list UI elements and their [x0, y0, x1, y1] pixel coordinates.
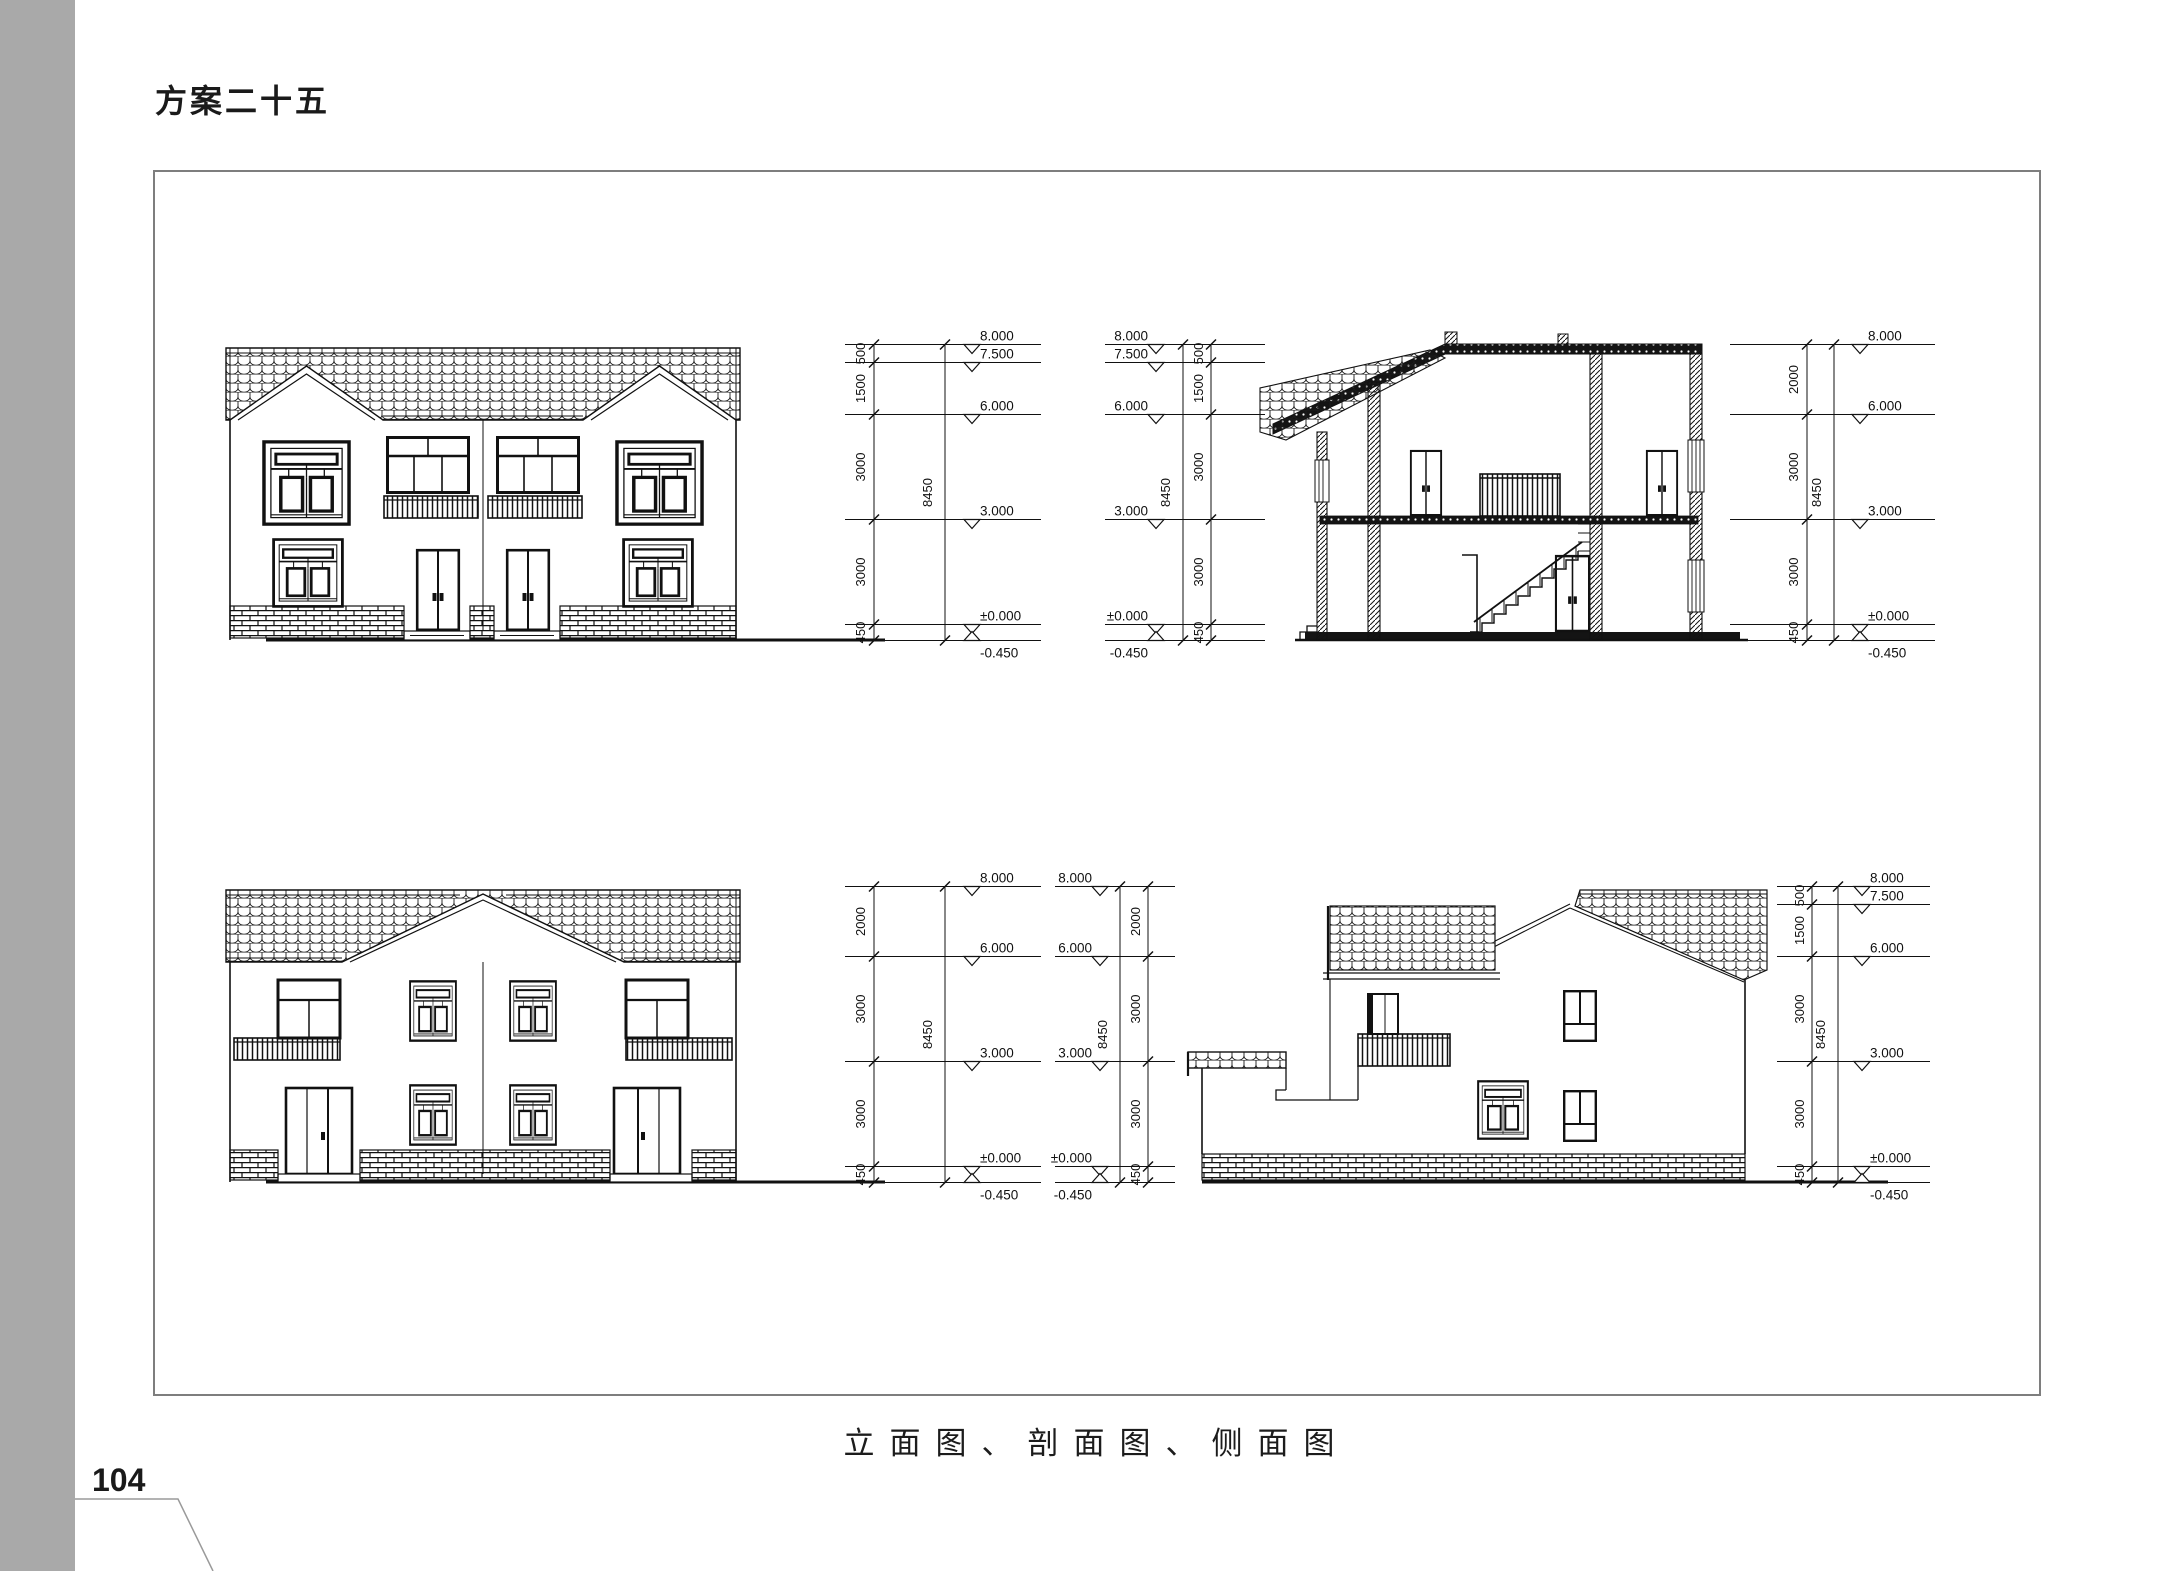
figure-caption: 立面图、剖面图、侧面图	[153, 1418, 2040, 1463]
svg-text:3000: 3000	[1786, 558, 1801, 587]
svg-text:-0.450: -0.450	[1868, 646, 1906, 661]
roof-tiles	[1575, 890, 1767, 980]
dim-stack-side-right: 50015003000300045084508.0007.5006.0003.0…	[1777, 871, 1930, 1203]
svg-text:500: 500	[1191, 343, 1206, 365]
svg-text:3000: 3000	[853, 558, 868, 587]
balcony-door	[1368, 994, 1398, 1034]
lattice-window	[1478, 1081, 1528, 1138]
roof-tiles	[226, 890, 740, 962]
svg-text:8.000: 8.000	[1114, 329, 1148, 344]
svg-text:8450: 8450	[920, 478, 935, 507]
brick-base	[1202, 1154, 1745, 1180]
svg-text:3000: 3000	[853, 453, 868, 482]
svg-text:±0.000: ±0.000	[1107, 609, 1148, 624]
svg-text:3.000: 3.000	[980, 1046, 1014, 1061]
svg-text:1500: 1500	[1792, 916, 1807, 945]
dim-stack-front-right: 50015003000300045084508.0007.5006.0003.0…	[845, 329, 1041, 661]
entry-door	[417, 550, 459, 630]
svg-text:7.500: 7.500	[1870, 889, 1904, 904]
roof-tiles	[1260, 350, 1445, 440]
roof-tiles	[226, 348, 740, 420]
interior-door	[1556, 556, 1589, 631]
dim-stack-side-left: 20003000300045084508.0006.0003.000±0.000…	[1051, 871, 1175, 1203]
svg-text:2000: 2000	[853, 907, 868, 936]
svg-text:8450: 8450	[1813, 1020, 1828, 1049]
svg-text:450: 450	[1191, 622, 1206, 644]
svg-text:3.000: 3.000	[1868, 504, 1902, 519]
svg-text:3000: 3000	[1128, 1100, 1143, 1129]
lattice-window	[410, 1085, 456, 1144]
svg-text:7.500: 7.500	[1114, 347, 1148, 362]
svg-text:8.000: 8.000	[1868, 329, 1902, 344]
svg-text:450: 450	[1792, 1164, 1807, 1186]
page-title: 方案二十五	[155, 76, 330, 122]
dim-stack-section-right: 20003000300045084508.0006.0003.000±0.000…	[1730, 329, 1935, 661]
floor-slab	[1320, 516, 1698, 524]
rear-door-right	[614, 1088, 680, 1174]
dim-stack-rear-right: 20003000300045084508.0006.0003.000±0.000…	[845, 871, 1041, 1203]
section-drawing: 50015003000300045084508.0007.5006.0003.0…	[1090, 320, 1980, 700]
svg-text:3.000: 3.000	[980, 504, 1014, 519]
svg-text:8.000: 8.000	[1870, 871, 1904, 886]
front-elevation-drawing: 50015003000300045084508.0007.5006.0003.0…	[190, 320, 1060, 700]
roof	[1323, 890, 1767, 982]
lattice-window	[624, 540, 693, 607]
svg-text:±0.000: ±0.000	[980, 1151, 1021, 1166]
stair-guard-railing	[1480, 474, 1560, 516]
svg-text:450: 450	[1786, 622, 1801, 644]
svg-text:450: 450	[853, 1164, 868, 1186]
side-window	[1564, 1091, 1596, 1141]
svg-text:8450: 8450	[920, 1020, 935, 1049]
svg-text:7.500: 7.500	[980, 347, 1014, 362]
lattice-window	[410, 981, 456, 1040]
svg-text:±0.000: ±0.000	[980, 609, 1021, 624]
svg-text:1500: 1500	[1191, 374, 1206, 403]
svg-text:3000: 3000	[1792, 1100, 1807, 1129]
svg-text:500: 500	[1792, 885, 1807, 907]
svg-text:-0.450: -0.450	[1110, 646, 1148, 661]
dim-stack-section-left: 50015003000300045084508.0007.5006.0003.0…	[1105, 329, 1265, 661]
svg-text:2000: 2000	[1128, 907, 1143, 936]
svg-text:8450: 8450	[1095, 1020, 1110, 1049]
lattice-window	[510, 1085, 556, 1144]
svg-text:3.000: 3.000	[1870, 1046, 1904, 1061]
side-window	[1564, 991, 1596, 1041]
brick-base	[230, 606, 736, 638]
interior-door	[1647, 451, 1677, 515]
porch-parapet	[1188, 1052, 1358, 1154]
balcony-left	[234, 980, 340, 1060]
roof-tiles	[1330, 906, 1495, 970]
svg-text:6.000: 6.000	[1870, 941, 1904, 956]
svg-text:6.000: 6.000	[1868, 399, 1902, 414]
svg-text:3000: 3000	[1191, 453, 1206, 482]
lattice-window	[617, 442, 702, 524]
svg-text:3000: 3000	[1191, 558, 1206, 587]
balcony-railing	[1358, 1034, 1450, 1066]
side-elevation-drawing: 20003000300045084508.0006.0003.000±0.000…	[1040, 862, 1950, 1242]
balcony-right	[626, 980, 732, 1060]
book-page: 方案二十五	[0, 0, 2173, 1571]
svg-text:-0.450: -0.450	[1054, 1188, 1092, 1203]
svg-text:6.000: 6.000	[1114, 399, 1148, 414]
interior-door	[1411, 451, 1441, 515]
balcony-window	[498, 438, 579, 493]
svg-text:±0.000: ±0.000	[1868, 609, 1909, 624]
svg-text:-0.450: -0.450	[980, 1188, 1018, 1203]
svg-text:2000: 2000	[1786, 365, 1801, 394]
svg-text:3.000: 3.000	[1114, 504, 1148, 519]
svg-text:3000: 3000	[853, 1100, 868, 1129]
svg-text:3000: 3000	[1792, 995, 1807, 1024]
entry-door	[507, 550, 549, 630]
svg-text:8450: 8450	[1158, 478, 1173, 507]
svg-text:±0.000: ±0.000	[1051, 1151, 1092, 1166]
svg-text:8.000: 8.000	[980, 329, 1014, 344]
svg-text:-0.450: -0.450	[980, 646, 1018, 661]
svg-text:3.000: 3.000	[1058, 1046, 1092, 1061]
rear-elevation-drawing: 20003000300045084508.0006.0003.000±0.000…	[190, 862, 1060, 1242]
svg-text:450: 450	[853, 622, 868, 644]
svg-text:8.000: 8.000	[1058, 871, 1092, 886]
svg-text:450: 450	[1128, 1164, 1143, 1186]
svg-text:500: 500	[853, 343, 868, 365]
ground-line	[1295, 626, 1748, 640]
svg-text:3000: 3000	[1786, 453, 1801, 482]
rear-door-left	[286, 1088, 352, 1174]
lattice-window	[264, 442, 349, 524]
svg-text:±0.000: ±0.000	[1870, 1151, 1911, 1166]
svg-text:6.000: 6.000	[980, 941, 1014, 956]
svg-text:3000: 3000	[853, 995, 868, 1024]
left-margin-bar	[0, 0, 75, 1571]
roof-structure	[1260, 332, 1702, 440]
svg-text:3000: 3000	[1128, 995, 1143, 1024]
svg-text:6.000: 6.000	[980, 399, 1014, 414]
lattice-window	[510, 981, 556, 1040]
svg-text:8450: 8450	[1809, 478, 1824, 507]
svg-text:1500: 1500	[853, 374, 868, 403]
svg-text:8.000: 8.000	[980, 871, 1014, 886]
svg-text:-0.450: -0.450	[1870, 1188, 1908, 1203]
corner-decoration-line	[70, 1490, 230, 1571]
balcony-window	[388, 438, 469, 493]
svg-text:6.000: 6.000	[1058, 941, 1092, 956]
lattice-window	[274, 540, 343, 607]
